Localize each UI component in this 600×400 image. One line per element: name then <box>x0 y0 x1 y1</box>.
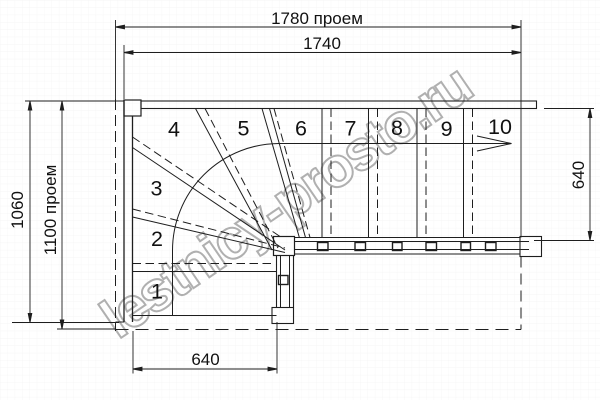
svg-text:3: 3 <box>151 177 163 201</box>
svg-text:9: 9 <box>441 117 453 141</box>
svg-text:8: 8 <box>391 116 403 140</box>
svg-text:1: 1 <box>151 280 163 304</box>
svg-text:1100 проем: 1100 проем <box>41 165 60 256</box>
svg-text:640: 640 <box>569 161 588 189</box>
svg-text:2: 2 <box>151 227 163 251</box>
svg-text:10: 10 <box>488 115 512 139</box>
svg-text:7: 7 <box>345 117 357 141</box>
svg-text:1060: 1060 <box>8 191 27 229</box>
svg-text:5: 5 <box>238 117 250 141</box>
svg-text:4: 4 <box>168 118 180 142</box>
svg-text:1740: 1740 <box>303 34 341 53</box>
svg-text:6: 6 <box>295 117 307 141</box>
svg-text:1780 проем: 1780 проем <box>271 9 363 28</box>
svg-text:640: 640 <box>191 350 219 369</box>
